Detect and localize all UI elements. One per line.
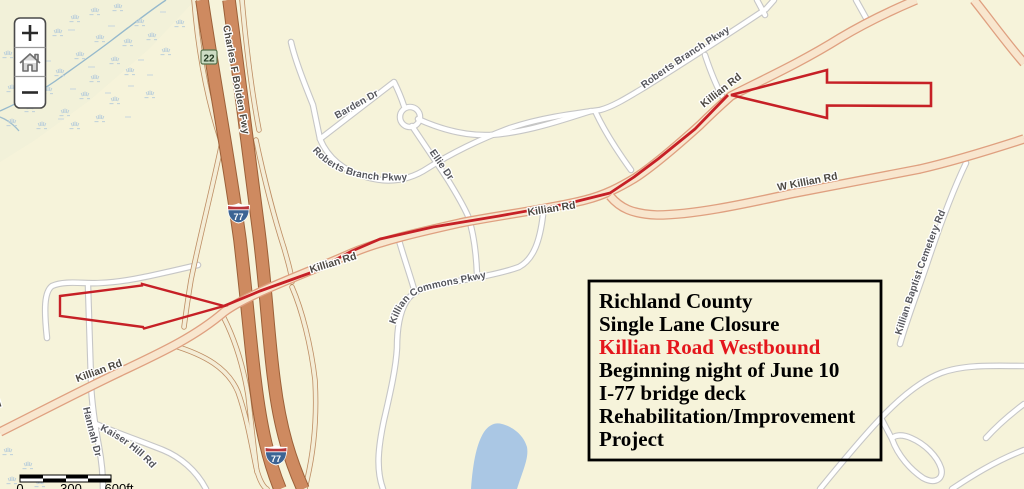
svg-text:Beginning night of June 10: Beginning night of June 10	[599, 358, 839, 382]
svg-text:Killian Road Westbound: Killian Road Westbound	[599, 335, 821, 359]
svg-text:77: 77	[233, 212, 243, 222]
svg-text:300: 300	[60, 481, 82, 489]
svg-text:Rehabilitation/Improvement: Rehabilitation/Improvement	[599, 404, 855, 428]
svg-text:I-77 bridge deck: I-77 bridge deck	[599, 381, 746, 405]
svg-text:600ft: 600ft	[105, 481, 134, 489]
svg-text:Single Lane Closure: Single Lane Closure	[599, 312, 779, 336]
svg-text:22: 22	[203, 54, 215, 65]
svg-text:Richland County: Richland County	[599, 289, 753, 313]
svg-text:77: 77	[271, 454, 281, 464]
svg-text:0: 0	[16, 481, 23, 489]
svg-text:Project: Project	[599, 427, 664, 451]
